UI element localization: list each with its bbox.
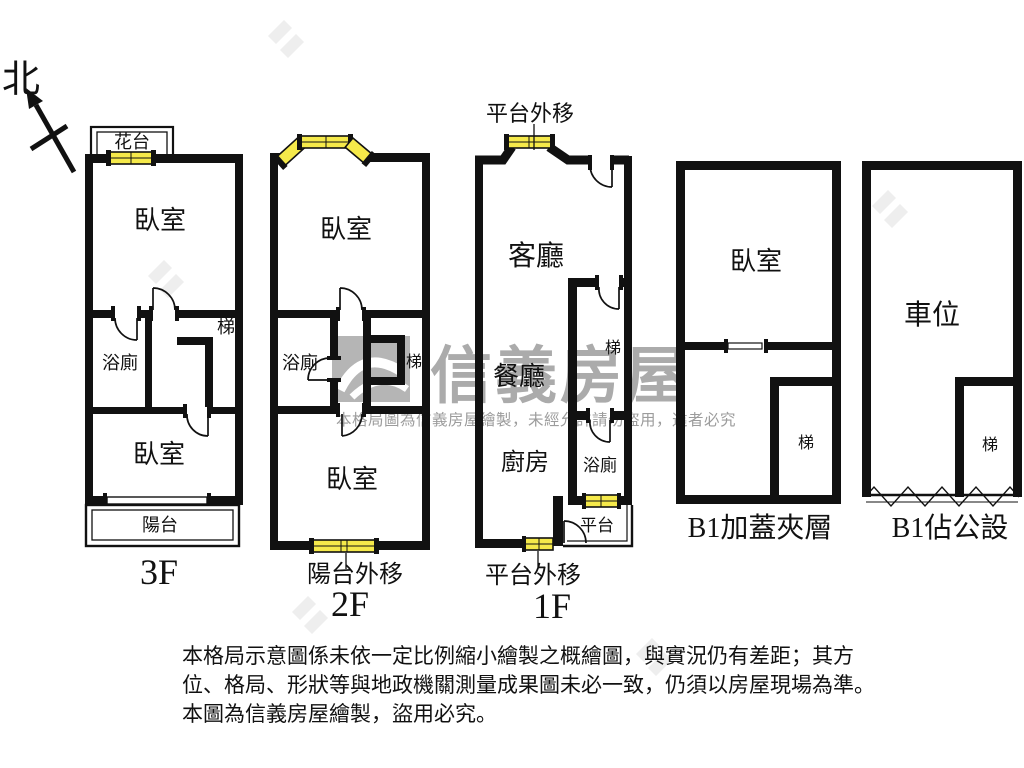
room-label-bathroom: 浴廁 xyxy=(102,352,138,373)
room-label-bathroom: 浴廁 xyxy=(583,455,617,475)
floor-label-1f: 1F xyxy=(533,586,571,626)
room-label-bedroom: 臥室 xyxy=(326,465,378,494)
annotation-platform-shift-bottom: 平台外移 xyxy=(485,562,581,589)
room-label-bedroom: 臥室 xyxy=(320,215,372,244)
north-arrow: 北 xyxy=(2,59,74,172)
room-label-bathroom: 浴廁 xyxy=(282,352,318,373)
floor-plan-3f: 花台 xyxy=(85,127,243,592)
window-1f-top xyxy=(504,124,555,150)
floor-plan-page: 信義房屋 本格局圖為信義房屋繪製，未經允許請勿盜用，違者必究 北 花台 xyxy=(0,0,1024,768)
room-label-dining: 餐廳 xyxy=(493,362,545,391)
floor-label-b1-mezzanine: B1加蓋夾層 xyxy=(688,512,833,544)
room-label-parking: 車位 xyxy=(904,299,960,331)
room-label-stairs: 梯 xyxy=(605,339,621,357)
floor-plan-drawing: 信義房屋 本格局圖為信義房屋繪製，未經允許請勿盜用，違者必究 北 花台 xyxy=(0,0,1024,768)
sliding-door-3f xyxy=(107,497,207,504)
disclaimer-line-1: 本格局示意圖係未依一定比例縮小繪製之概繪圖，與實況仍有差距；其方 xyxy=(182,644,854,668)
room-label-stairs: 梯 xyxy=(798,434,814,452)
window-1f-bath xyxy=(582,493,621,509)
annotation-platform-shift-top: 平台外移 xyxy=(486,101,574,126)
room-label-balcony: 陽台 xyxy=(142,515,178,535)
disclaimer: 本格局示意圖係未依一定比例縮小繪製之概繪圖，與實況仍有差距；其方 位、格局、形狀… xyxy=(182,644,875,726)
disclaimer-line-3: 本圖為信義房屋繪製，盜用必究。 xyxy=(182,702,497,726)
floor-label-2f: 2F xyxy=(331,584,369,624)
bay-window-2f xyxy=(272,134,376,170)
brand-watermark-text: 信義房屋 xyxy=(430,342,690,411)
floor-label-b1-public: B1佔公設 xyxy=(892,512,1009,544)
room-label-bedroom: 臥室 xyxy=(730,247,782,276)
window-b1-mezzanine xyxy=(724,339,768,353)
floor-plan-b1-mezzanine: 臥室 梯 B1加蓋夾層 xyxy=(676,161,841,544)
door-jambs-3f xyxy=(103,306,211,507)
disclaimer-line-2: 位、格局、形狀等與地政機關測量成果圖未必一致，仍須以房屋現場為準。 xyxy=(182,673,875,697)
room-label-stairs: 梯 xyxy=(217,317,235,337)
window-3f-top xyxy=(106,150,156,166)
walls-b1-mezzanine xyxy=(676,161,841,504)
room-label-stairs: 梯 xyxy=(406,353,422,371)
room-label-stairs: 梯 xyxy=(982,436,998,454)
room-label-flower-bed: 花台 xyxy=(114,132,150,152)
room-label-bedroom: 臥室 xyxy=(133,440,185,469)
open-boundary-b1-public xyxy=(866,487,1019,506)
room-label-bedroom: 臥室 xyxy=(134,206,186,235)
room-label-living: 客廳 xyxy=(508,240,564,272)
room-label-kitchen: 廚房 xyxy=(501,449,549,476)
room-label-platform: 平台 xyxy=(580,516,614,535)
floor-label-3f: 3F xyxy=(140,552,178,592)
